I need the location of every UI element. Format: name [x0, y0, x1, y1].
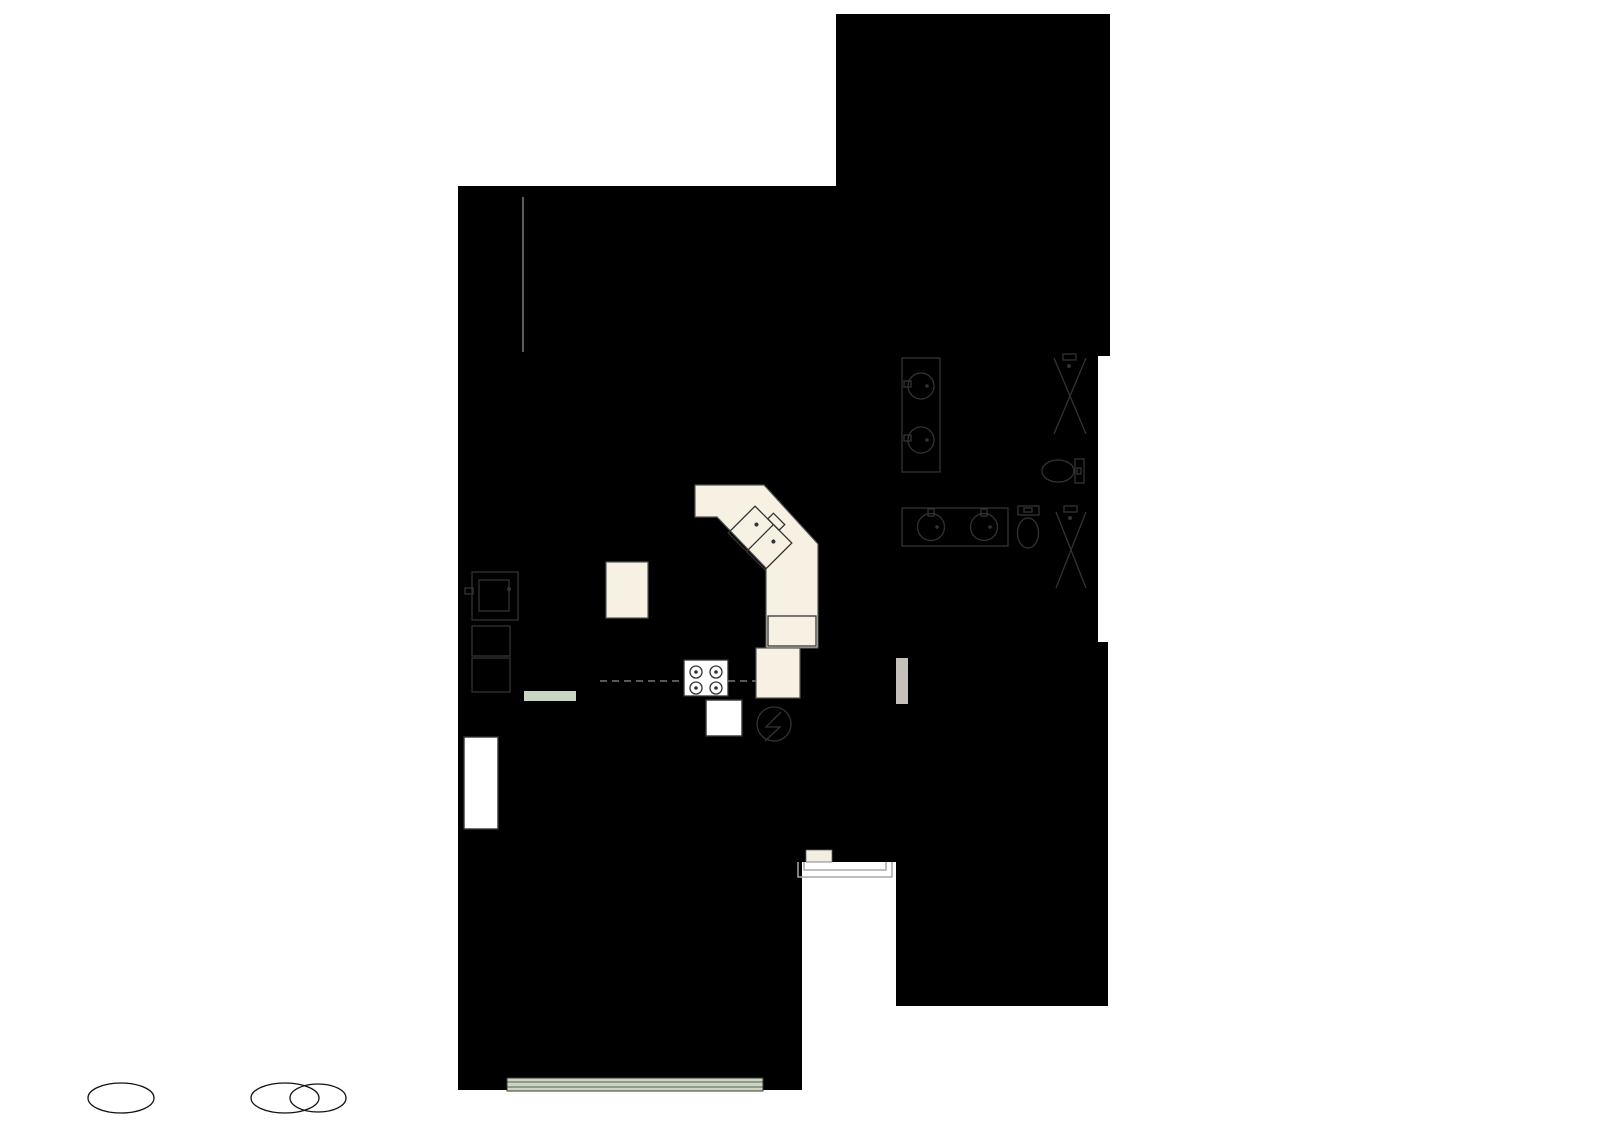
- stove-icon: [684, 660, 728, 696]
- pantry-cabinet: [606, 562, 648, 618]
- hvac-unit: [706, 700, 742, 736]
- watermark: [88, 1083, 346, 1113]
- floor-plan: [0, 0, 1600, 1133]
- front-door-threshold: [806, 850, 832, 862]
- floor-primary-bedroom: [836, 14, 1110, 356]
- floor-plan-page: [0, 0, 1600, 1133]
- bedroom-door-opening: [896, 658, 908, 704]
- laundry-door-threshold: [524, 691, 576, 701]
- watermark-flourish: [88, 1083, 154, 1113]
- garage-cabinet: [464, 737, 498, 829]
- floor-garage: [458, 690, 802, 1090]
- floor-laundry: [458, 540, 600, 702]
- porch-step: [798, 862, 892, 877]
- floor-bedroom: [896, 642, 1108, 1006]
- watermark-flourish: [251, 1083, 319, 1113]
- garage-door: [507, 1078, 763, 1091]
- foyer-closet: [756, 648, 800, 698]
- watermark-flourish: [290, 1084, 346, 1112]
